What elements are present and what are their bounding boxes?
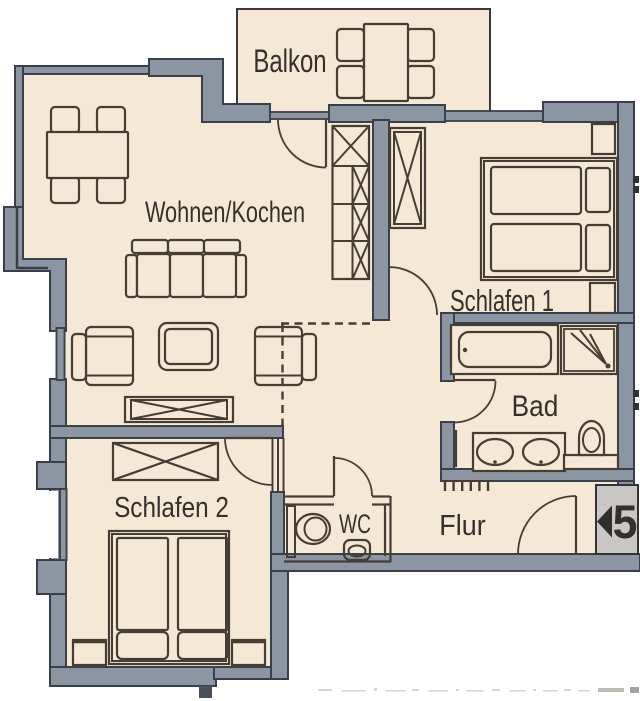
svg-text:Balkon: Balkon [253,43,326,79]
svg-text:Schlafen 2: Schlafen 2 [114,491,229,524]
svg-text:Bad: Bad [512,388,559,422]
svg-text:Schlafen 1: Schlafen 1 [450,283,554,318]
svg-text:5: 5 [613,496,638,548]
svg-text:WC: WC [339,509,371,539]
svg-text:Wohnen/Kochen: Wohnen/Kochen [145,195,305,229]
svg-text:Flur: Flur [439,509,485,541]
